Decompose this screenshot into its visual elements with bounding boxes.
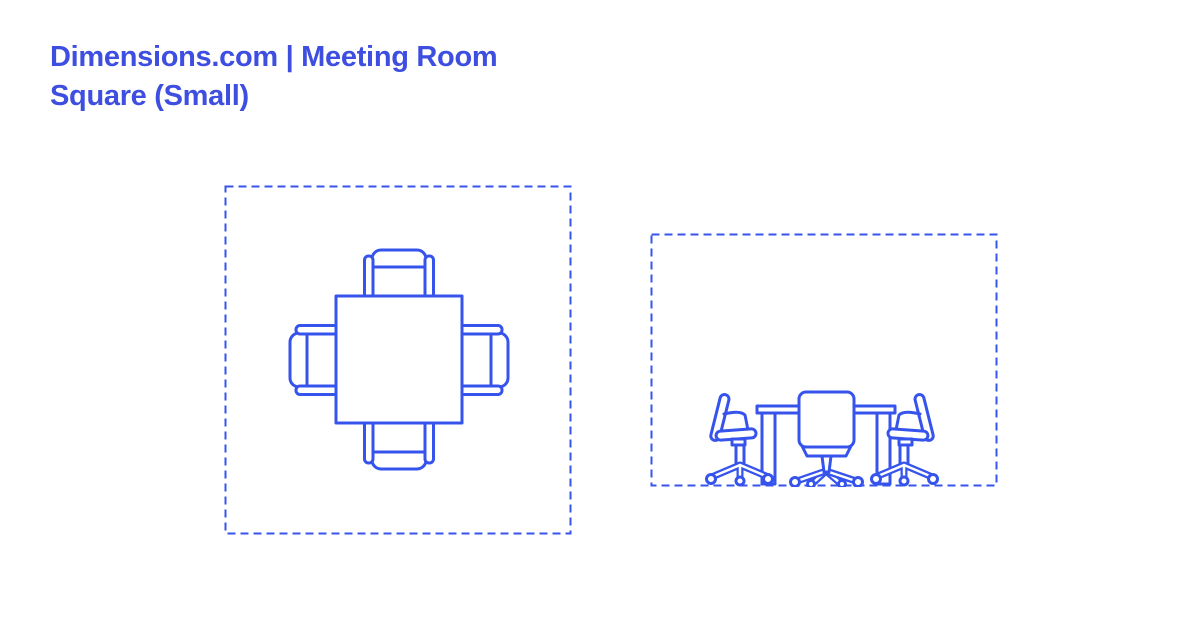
plan-chair-right: [458, 326, 508, 395]
plan-view-drawing: [224, 185, 572, 535]
page-title: Dimensions.com | Meeting Room Square (Sm…: [50, 38, 497, 116]
plan-table: [336, 296, 462, 423]
plan-view-figure: [224, 185, 572, 535]
elevation-view-drawing: [650, 233, 998, 487]
page-title-line-2: Square (Small): [50, 77, 497, 116]
og-card: { "colors": { "background": "#ffffff", "…: [0, 0, 1200, 630]
elevation-view-figure: [650, 233, 998, 487]
plan-chair-left: [290, 326, 340, 395]
elevation-chair-center: [791, 392, 863, 487]
page-title-line-1: Dimensions.com | Meeting Room: [50, 38, 497, 77]
plan-chair-top: [365, 250, 434, 300]
plan-chair-bottom: [365, 419, 434, 469]
